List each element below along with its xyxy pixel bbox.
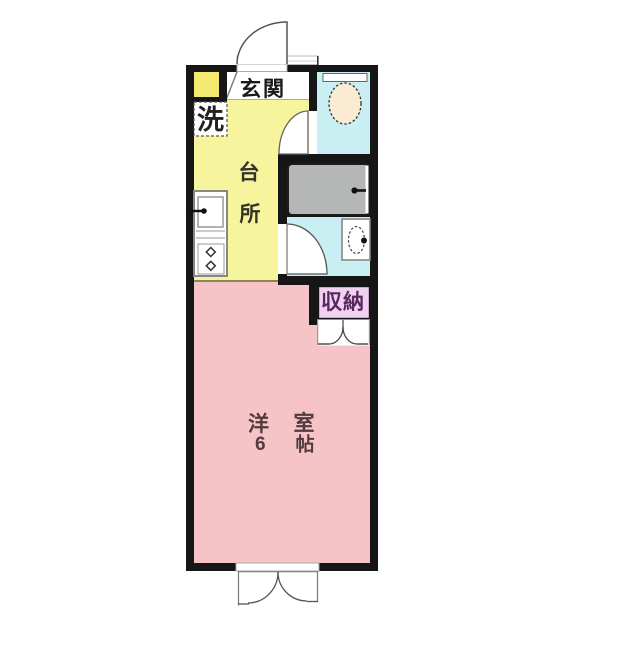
svg-text:洋: 洋	[248, 412, 269, 436]
svg-text:収納: 収納	[321, 290, 365, 314]
svg-text:玄関: 玄関	[240, 77, 286, 101]
svg-text:洗: 洗	[197, 105, 224, 135]
svg-text:6: 6	[255, 434, 266, 455]
svg-text:室: 室	[294, 411, 315, 435]
svg-text:帖: 帖	[296, 433, 315, 456]
svg-text:台: 台	[239, 161, 260, 185]
svg-text:所: 所	[240, 203, 261, 226]
